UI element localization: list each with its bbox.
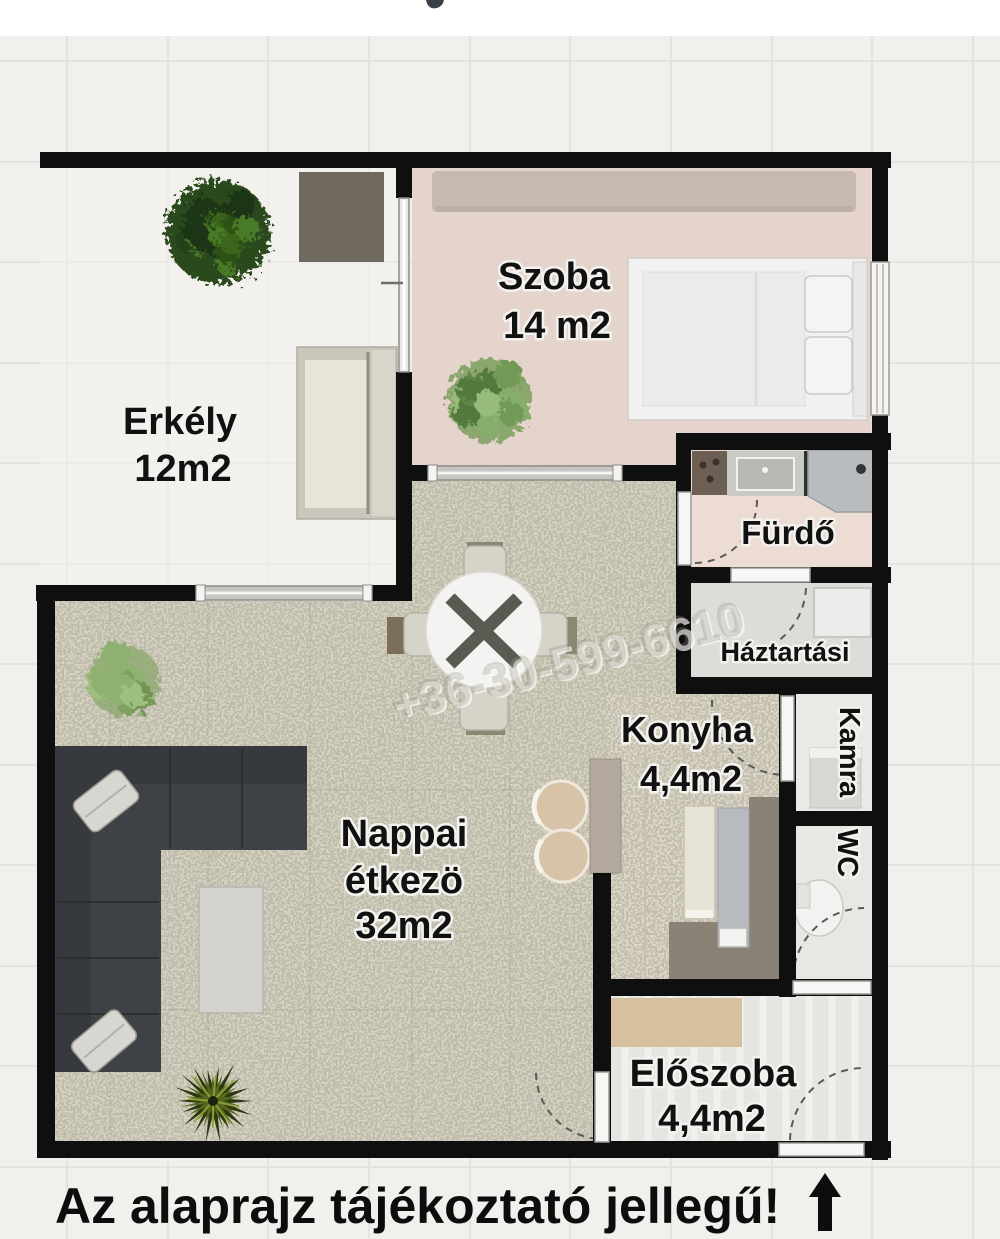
svg-text:Háztartási: Háztartási [720, 637, 849, 667]
svg-text:Az alaprajz tájékoztató jelleg: Az alaprajz tájékoztató jellegű! [55, 1178, 780, 1234]
svg-text:Előszoba: Előszoba [630, 1053, 798, 1095]
svg-text:Nappai: Nappai [341, 813, 468, 855]
svg-text:12m2: 12m2 [134, 448, 231, 490]
svg-text:Fürdő: Fürdő [741, 514, 834, 551]
svg-text:32m2: 32m2 [355, 905, 452, 947]
svg-text:Szoba: Szoba [498, 256, 611, 298]
svg-text:Erkély: Erkély [123, 401, 237, 443]
svg-text:14 m2: 14 m2 [503, 305, 611, 347]
svg-text:4,4m2: 4,4m2 [640, 758, 742, 799]
svg-text:WC: WC [831, 829, 863, 877]
svg-text:étkezö: étkezö [345, 860, 463, 902]
svg-text:4,4m2: 4,4m2 [658, 1098, 766, 1140]
svg-text:Kamra: Kamra [833, 707, 865, 798]
svg-text:Konyha: Konyha [621, 709, 754, 750]
